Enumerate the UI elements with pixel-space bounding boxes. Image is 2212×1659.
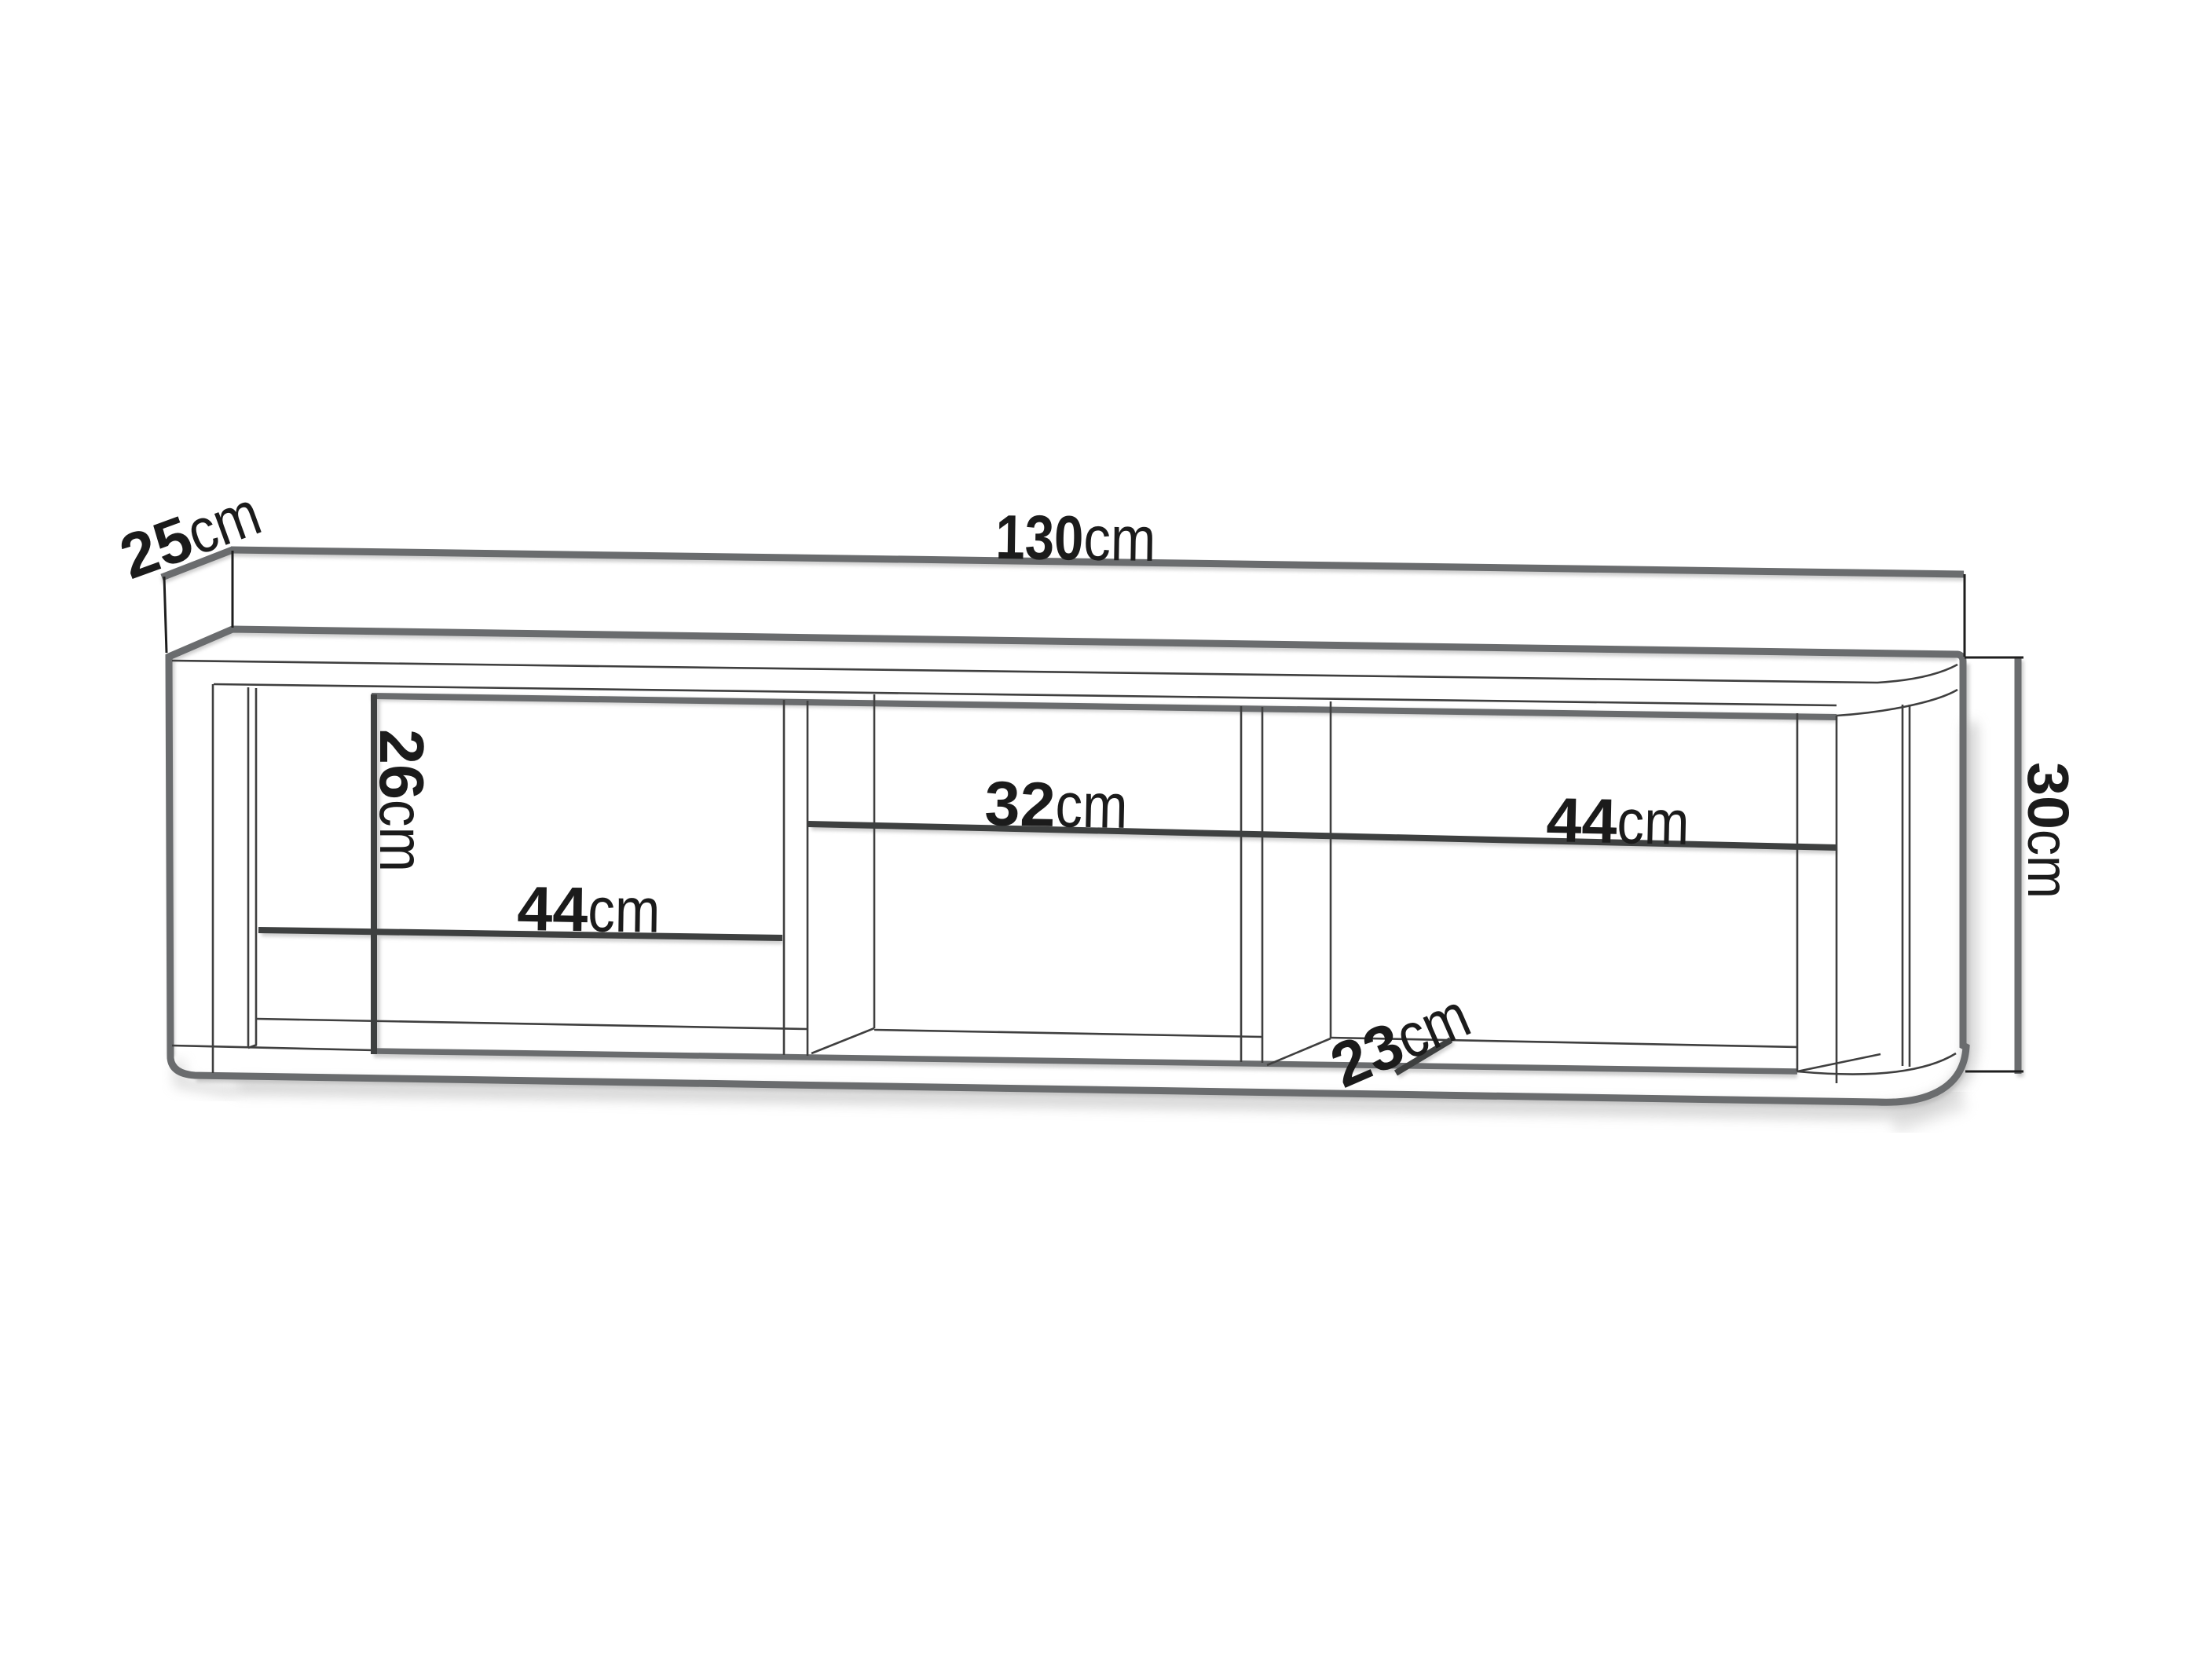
svg-text:26cm: 26cm — [367, 729, 437, 872]
svg-text:130cm: 130cm — [995, 502, 1156, 574]
svg-text:30cm: 30cm — [2016, 762, 2081, 899]
svg-text:44cm: 44cm — [1546, 785, 1690, 858]
svg-text:44cm: 44cm — [517, 873, 661, 946]
svg-text:32cm: 32cm — [984, 768, 1129, 841]
